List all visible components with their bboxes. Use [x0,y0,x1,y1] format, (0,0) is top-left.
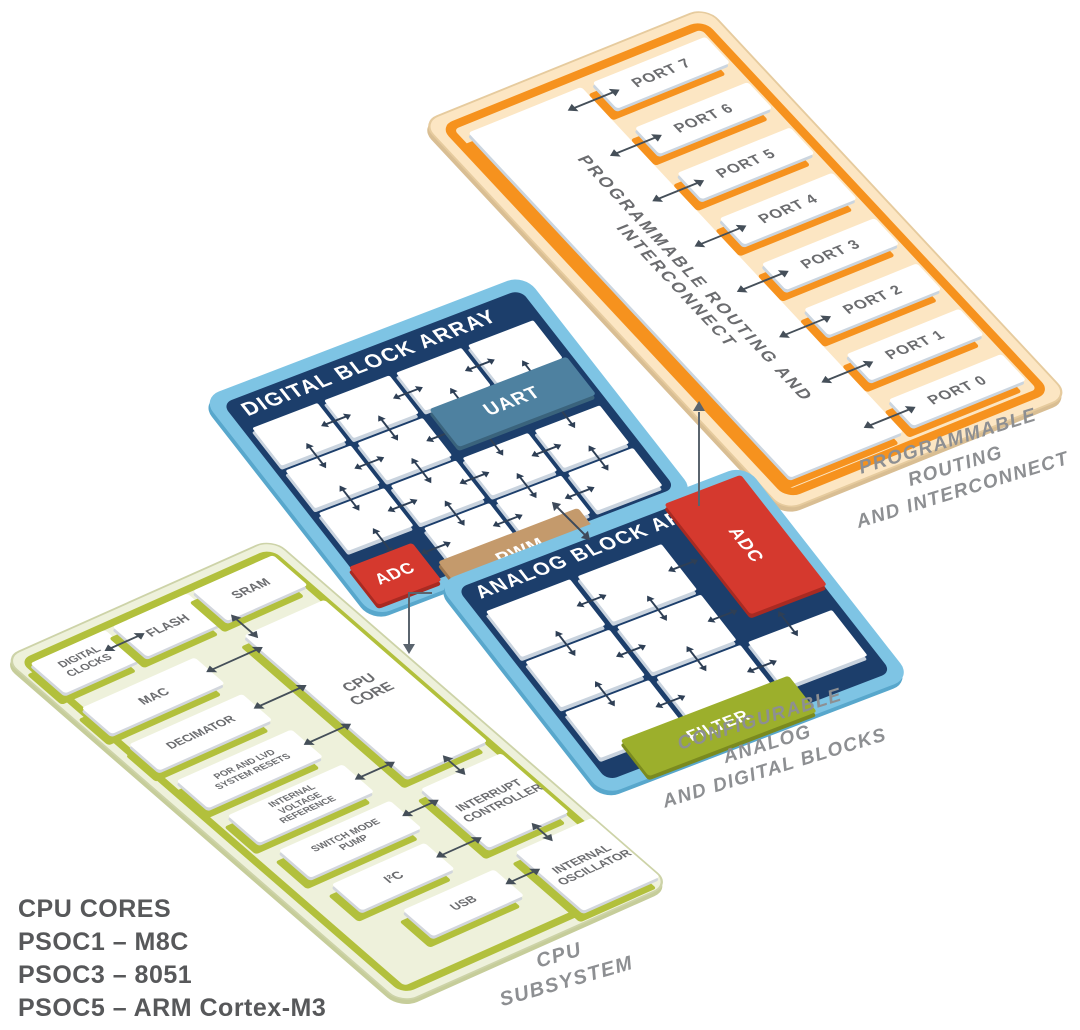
digital-to-cpu-line-h [408,592,432,594]
legend-title: CPU CORES [18,893,326,926]
uart-label: UART [479,383,546,421]
cpu-cores-legend: CPU CORES PSOC1 – M8C PSOC3 – 8051 PSOC5… [18,893,326,1025]
mac-label: MAC [134,685,172,707]
legend-psoc1: PSOC1 – M8C [18,926,326,959]
sram-label: SRAM [227,575,273,600]
cpu-core-label: CPU CORE [329,667,403,711]
internal-oscillator-label: INTERNAL OSCILLATOR [544,841,631,888]
usb-label: USB [447,893,481,912]
legend-psoc3: PSOC3 – 8051 [18,959,326,992]
flash-label: FLASH [142,611,193,638]
legend-psoc5: PSOC5 – ARM Cortex-M3 [18,992,326,1025]
arrays-to-routing-line [698,412,700,506]
arrays-to-routing-arrowhead [693,401,705,411]
digital-to-cpu-arrowhead [403,644,415,654]
digital-to-cpu-line-v [408,592,410,644]
interrupt-controller-label: INTERRUPT CONTROLLER [450,776,540,825]
digital-adc-label: ADC [371,559,421,589]
analog-adc-label: ADC [723,524,768,565]
psoc-architecture-diagram: PROGRAMMABLE ROUTING AND INTERCONNECT PO… [0,0,1080,1030]
i2c-label: I²C [380,868,407,885]
